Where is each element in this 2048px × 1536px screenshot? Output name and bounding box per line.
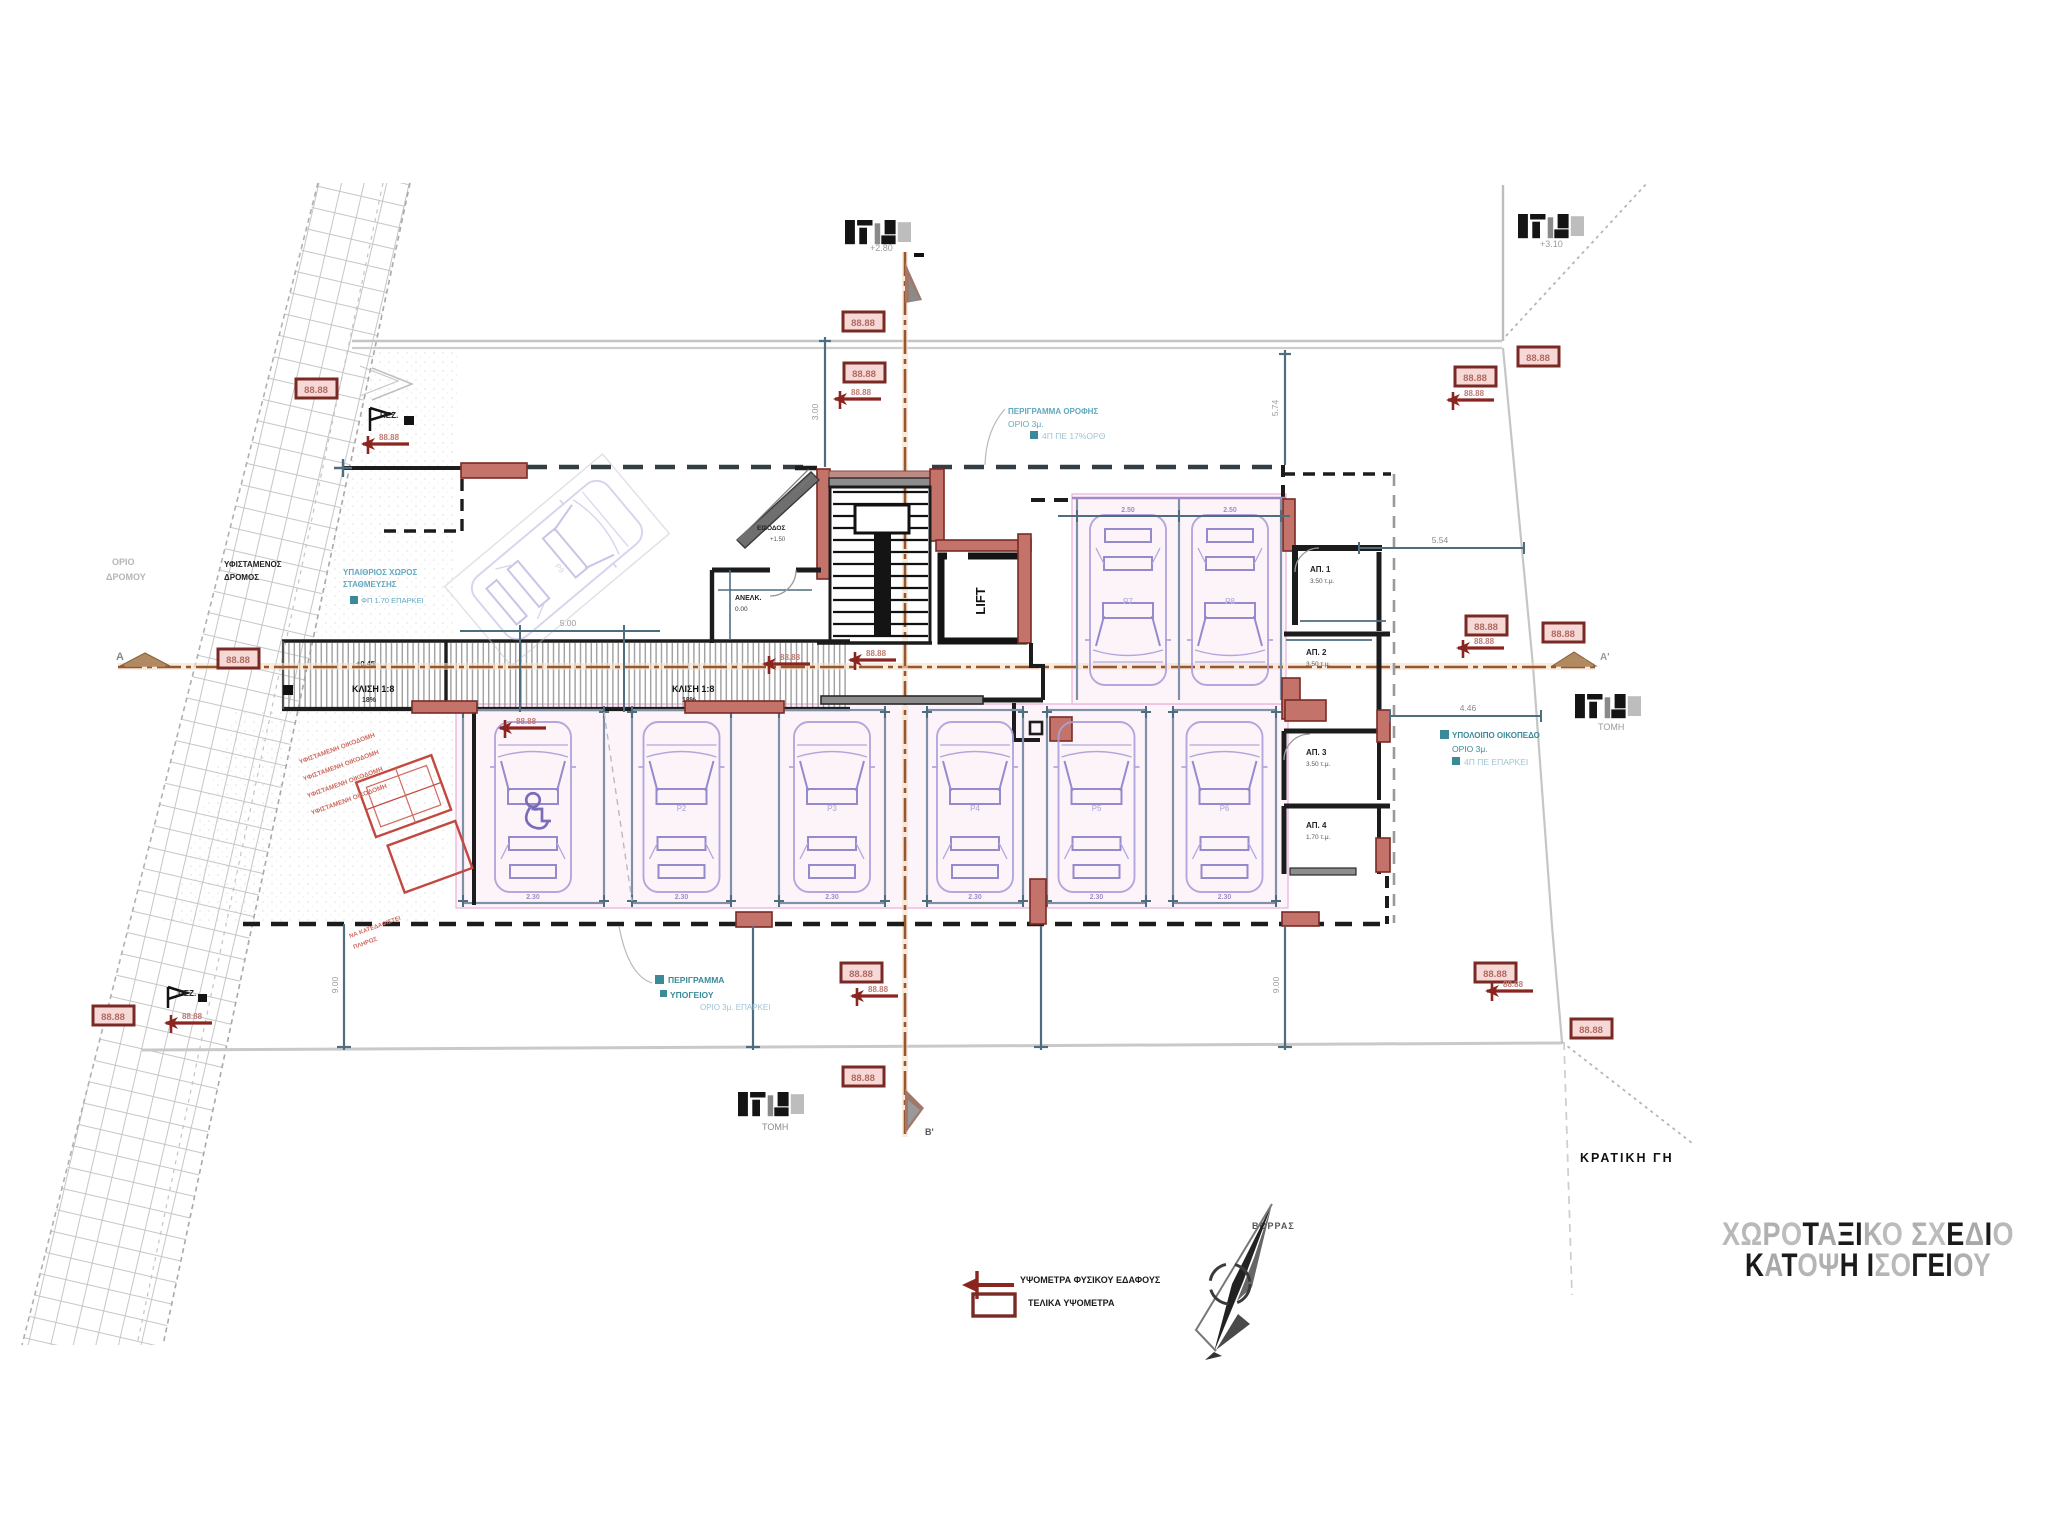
svg-text:ΔΡΟΜΟΣ: ΔΡΟΜΟΣ <box>224 573 259 582</box>
svg-text:9.00: 9.00 <box>330 976 340 993</box>
svg-text:9.00: 9.00 <box>1271 976 1281 993</box>
svg-text:ΥΠΑΙΘΡΙΟΣ ΧΩΡΟΣ: ΥΠΑΙΘΡΙΟΣ ΧΩΡΟΣ <box>343 568 417 577</box>
svg-text:+3.10: +3.10 <box>1540 239 1563 249</box>
svg-text:+2.80: +2.80 <box>870 243 893 253</box>
svg-text:P8: P8 <box>1225 597 1235 606</box>
svg-text:ΟΡΙΟ 3μ.: ΟΡΙΟ 3μ. <box>1008 419 1044 429</box>
svg-text:0.00: 0.00 <box>735 606 748 613</box>
svg-text:5.00: 5.00 <box>560 618 577 628</box>
svg-text:P2: P2 <box>677 804 687 813</box>
svg-text:ΑΠ. 4: ΑΠ. 4 <box>1306 821 1327 830</box>
svg-text:ΠΕΖ.: ΠΕΖ. <box>178 989 196 998</box>
svg-text:ΥΨΟΜΕΤΡΑ ΦΥΣΙΚΟΥ ΕΔΑΦΟΥΣ: ΥΨΟΜΕΤΡΑ ΦΥΣΙΚΟΥ ΕΔΑΦΟΥΣ <box>1020 1275 1161 1285</box>
svg-text:P7: P7 <box>1123 597 1133 606</box>
svg-text:2.30: 2.30 <box>1090 894 1104 901</box>
svg-text:ΑΠ. 1: ΑΠ. 1 <box>1310 565 1331 574</box>
svg-text:P6: P6 <box>1220 804 1230 813</box>
svg-text:2.30: 2.30 <box>968 894 982 901</box>
svg-text:LIFT: LIFT <box>973 587 988 614</box>
svg-text:Α: Α <box>116 651 124 663</box>
svg-text:3.50 τ.μ.: 3.50 τ.μ. <box>1310 578 1335 585</box>
svg-text:ΦΠ 1.70 ΕΠΑΡΚΕΙ: ΦΠ 1.70 ΕΠΑΡΚΕΙ <box>361 596 424 605</box>
svg-text:2.30: 2.30 <box>675 894 689 901</box>
svg-text:Α': Α' <box>1600 652 1610 663</box>
svg-text:ΚΑΤΟΨΗ ΙΣΟΓΕΙΟΥ: ΚΑΤΟΨΗ ΙΣΟΓΕΙΟΥ <box>1745 1247 1991 1283</box>
svg-text:+1.50: +1.50 <box>770 537 786 543</box>
svg-text:4Π ΠΕ ΕΠΑΡΚΕΙ: 4Π ΠΕ ΕΠΑΡΚΕΙ <box>1464 757 1528 767</box>
svg-text:Β': Β' <box>925 1127 934 1137</box>
svg-text:ΥΠΟΓΕΙΟΥ: ΥΠΟΓΕΙΟΥ <box>670 990 714 1000</box>
svg-text:5.54: 5.54 <box>1432 535 1449 545</box>
svg-text:4Π ΠΕ 17%ΟΡΘ: 4Π ΠΕ 17%ΟΡΘ <box>1042 431 1106 441</box>
svg-text:P4: P4 <box>970 804 980 813</box>
svg-text:ΚΛΙΣΗ 1:8: ΚΛΙΣΗ 1:8 <box>672 684 714 694</box>
svg-text:2.50: 2.50 <box>1223 507 1237 514</box>
svg-text:18%: 18% <box>362 697 377 704</box>
svg-text:3.50 τ.μ.: 3.50 τ.μ. <box>1306 761 1331 768</box>
svg-text:ΣΤΑΘΜΕΥΣΗΣ: ΣΤΑΘΜΕΥΣΗΣ <box>343 580 397 589</box>
svg-text:ΚΡΑΤΙΚΗ ΓΗ: ΚΡΑΤΙΚΗ ΓΗ <box>1580 1151 1674 1165</box>
svg-text:ΤΟΜΗ: ΤΟΜΗ <box>762 1122 788 1132</box>
svg-text:ΕΙΣΟΔΟΣ: ΕΙΣΟΔΟΣ <box>757 525 785 532</box>
svg-text:ΤΟΜΗ: ΤΟΜΗ <box>1598 722 1624 732</box>
svg-text:4.46: 4.46 <box>1460 703 1477 713</box>
svg-text:ΠΕΖ.: ΠΕΖ. <box>380 411 398 420</box>
svg-text:2.50: 2.50 <box>1121 507 1135 514</box>
svg-text:3.50 τ.μ.: 3.50 τ.μ. <box>1306 661 1331 668</box>
svg-text:1.70 τ.μ.: 1.70 τ.μ. <box>1306 834 1331 841</box>
svg-text:ΔΡΟΜΟΥ: ΔΡΟΜΟΥ <box>106 572 146 582</box>
svg-text:2.30: 2.30 <box>526 894 540 901</box>
svg-text:ΚΛΙΣΗ 1:8: ΚΛΙΣΗ 1:8 <box>352 684 394 694</box>
svg-text:P3: P3 <box>827 804 837 813</box>
svg-text:ΑΠ. 2: ΑΠ. 2 <box>1306 648 1327 657</box>
svg-text:ΠΕΡΙΓΡΑΜΜΑ ΟΡΟΦΗΣ: ΠΕΡΙΓΡΑΜΜΑ ΟΡΟΦΗΣ <box>1008 407 1098 416</box>
svg-text:ΑΠ. 3: ΑΠ. 3 <box>1306 748 1327 757</box>
svg-text:ΥΦΙΣΤΑΜΕΝΟΣ: ΥΦΙΣΤΑΜΕΝΟΣ <box>224 560 282 569</box>
svg-text:ΑΝΕΛΚ.: ΑΝΕΛΚ. <box>735 595 762 602</box>
svg-text:2.30: 2.30 <box>1218 894 1232 901</box>
svg-text:ΠΕΡΙΓΡΑΜΜΑ: ΠΕΡΙΓΡΑΜΜΑ <box>668 975 724 985</box>
svg-text:2.30: 2.30 <box>825 894 839 901</box>
svg-text:ΤΕΛΙΚΑ ΥΨΟΜΕΤΡΑ: ΤΕΛΙΚΑ ΥΨΟΜΕΤΡΑ <box>1028 1298 1115 1308</box>
svg-text:ΟΡΙΟ 3μ. ΕΠΑΡΚΕΙ: ΟΡΙΟ 3μ. ΕΠΑΡΚΕΙ <box>700 1003 770 1012</box>
svg-text:ΥΠΟΛΟΙΠΟ ΟΙΚΟΠΕΔΟ: ΥΠΟΛΟΙΠΟ ΟΙΚΟΠΕΔΟ <box>1452 731 1540 740</box>
svg-text:P5: P5 <box>1092 804 1102 813</box>
svg-text:ΟΡΙΟ 3μ.: ΟΡΙΟ 3μ. <box>1452 744 1488 754</box>
svg-text:ΟΡΙΟ: ΟΡΙΟ <box>112 557 135 567</box>
svg-text:3.00: 3.00 <box>810 403 820 420</box>
svg-text:5.74: 5.74 <box>1270 399 1280 416</box>
